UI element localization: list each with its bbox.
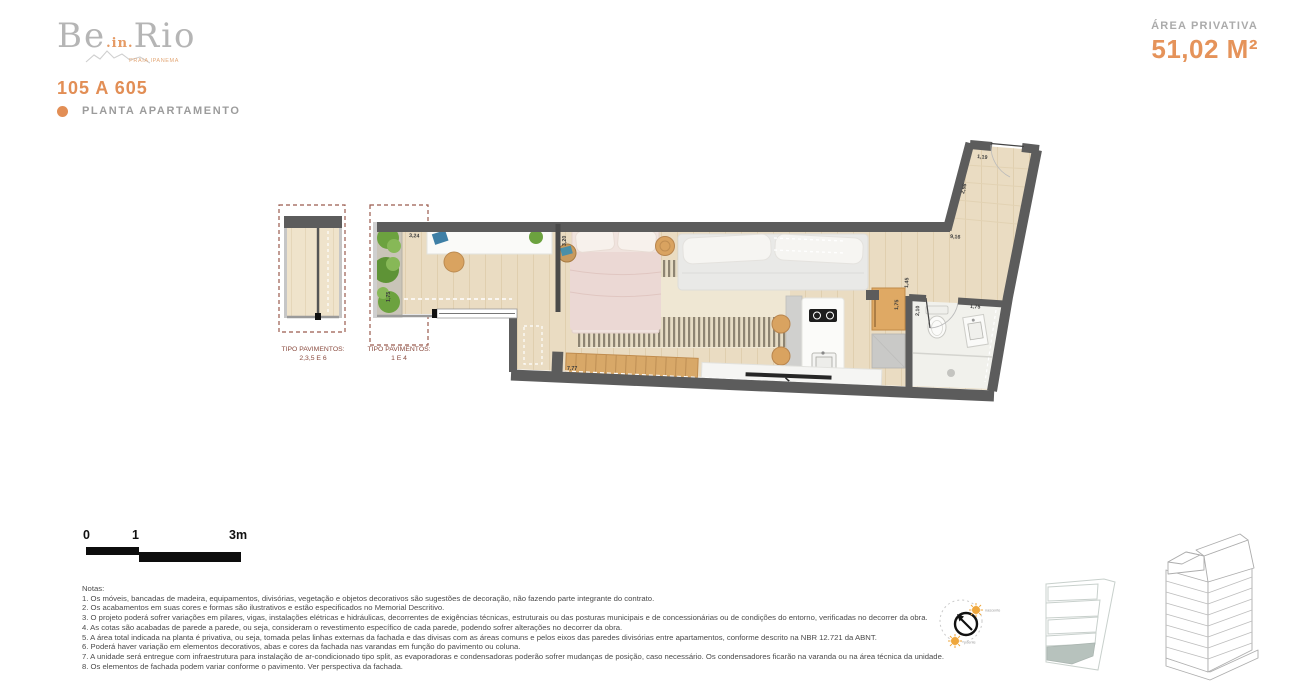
dim-total-depth: 9,16 xyxy=(950,234,961,241)
bathroom-floor xyxy=(912,301,1003,389)
sunset-label: poente xyxy=(964,641,976,645)
private-area-label: ÁREA PRIVATIVA xyxy=(1151,20,1258,32)
scale-bar-segment-1 xyxy=(86,547,139,555)
bed xyxy=(570,227,661,333)
site-bar xyxy=(1046,600,1100,618)
floorplan-sheet: Be.in.Rio PRAIA IPANEMA 105 A 605 PLANTA… xyxy=(0,0,1297,694)
plan-type-label: PLANTA APARTAMENTO xyxy=(82,105,241,117)
dim-sliding-door: 3,20 xyxy=(562,236,568,246)
building-left-face xyxy=(1166,570,1208,672)
site-key-plan xyxy=(1038,574,1123,674)
shower-drain xyxy=(947,369,955,377)
balcony-floor xyxy=(287,228,339,317)
balcony-wall xyxy=(284,216,342,228)
plan-type: PLANTA APARTAMENTO xyxy=(57,105,241,117)
side-table-right xyxy=(656,237,675,256)
variant-label-line1: TIPO PAVIMENTOS: xyxy=(281,346,344,353)
balcony-side-wall xyxy=(284,228,287,318)
desk-plant xyxy=(529,230,543,244)
variant-label-line2: 1 E 4 xyxy=(391,355,407,362)
bullet-dot-icon xyxy=(57,106,68,117)
bathroom-sink xyxy=(963,314,988,347)
sunset-sun-icon xyxy=(948,634,962,648)
site-bar xyxy=(1048,584,1098,601)
unit-code: 105 A 605 xyxy=(57,78,148,99)
bathroom xyxy=(912,298,1003,389)
balcony-side-wall xyxy=(339,228,342,318)
dim-bathroom-sink-wall: 1,75 xyxy=(970,304,981,311)
building-perspective-sketch xyxy=(1148,522,1268,692)
variant-label-line1: TIPO PAVIMENTOS: xyxy=(367,346,430,353)
dim-cabinet: 1,75 xyxy=(894,300,900,311)
private-area-block: ÁREA PRIVATIVA 51,02 M² xyxy=(1151,20,1258,65)
brand-logo: Be.in.Rio PRAIA IPANEMA xyxy=(57,16,207,56)
balcony-variant-2356: TIPO PAVIMENTOS: 2,3,5 E 6 xyxy=(279,205,345,362)
variant-label-line2: 2,3,5 E 6 xyxy=(299,355,326,362)
scale-tick-0: 0 xyxy=(83,528,90,542)
site-bar xyxy=(1048,617,1098,634)
sunrise-sun-icon xyxy=(969,603,983,617)
logo-tagline: PRAIA IPANEMA xyxy=(57,58,179,64)
dim-balcony-width: 3,24 xyxy=(409,233,420,240)
pillow xyxy=(617,228,657,252)
door-handle xyxy=(315,313,321,320)
stool xyxy=(772,347,790,365)
stool xyxy=(444,252,464,272)
sofa xyxy=(678,234,868,290)
private-area-value: 51,02 M² xyxy=(1151,34,1258,65)
scale-tick-1: 1 xyxy=(132,528,139,542)
dim-living-length: 7,77 xyxy=(567,366,577,372)
scale-tick-3m: 3m xyxy=(229,528,247,542)
dim-kitchen-wall: 1,45 xyxy=(904,277,911,288)
dim-balcony-depth: 1,75 xyxy=(386,292,392,302)
scale-bar: 0 1 3m xyxy=(83,528,273,570)
stool xyxy=(772,315,790,333)
wall-stub xyxy=(866,290,879,300)
door-handle xyxy=(432,309,437,318)
sofa-cushion xyxy=(682,234,771,265)
toilet-tank xyxy=(926,306,948,314)
dim-bathroom-width: 2,10 xyxy=(915,306,921,317)
floor-plan: TIPO PAVIMENTOS: 2,3,5 E 6 TIPO PAVIMENT… xyxy=(278,120,1068,430)
planter-edge xyxy=(373,222,377,318)
scale-bar-segment-2 xyxy=(139,552,241,562)
sun-orientation-diagram: nascente poente xyxy=(932,584,1022,669)
dim-entry-door: 1,19 xyxy=(977,154,988,161)
sunrise-label: nascente xyxy=(985,609,1000,613)
apartment-plan: 3,24 1,75 3,20 7,77 1,45 1,75 2,10 1,75 … xyxy=(373,143,1039,396)
